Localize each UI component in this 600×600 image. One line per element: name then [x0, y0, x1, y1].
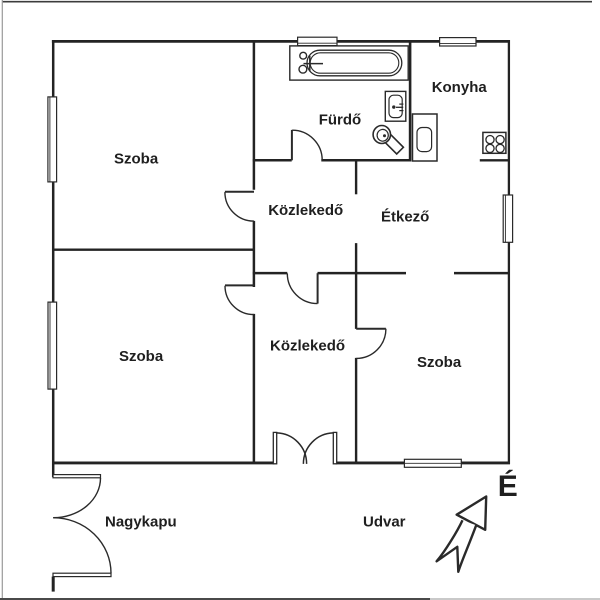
svg-text:Szoba: Szoba — [119, 348, 164, 365]
svg-text:É: É — [498, 469, 518, 503]
svg-text:Udvar: Udvar — [363, 514, 406, 531]
svg-text:Konyha: Konyha — [432, 79, 488, 96]
svg-text:Fürdő: Fürdő — [319, 111, 362, 128]
svg-text:Közlekedő: Közlekedő — [270, 338, 345, 355]
svg-text:Szoba: Szoba — [114, 151, 159, 168]
svg-text:Szoba: Szoba — [417, 354, 462, 371]
svg-text:Közlekedő: Közlekedő — [268, 202, 343, 219]
svg-text:Nagykapu: Nagykapu — [105, 514, 177, 531]
svg-text:Étkező: Étkező — [381, 209, 429, 226]
